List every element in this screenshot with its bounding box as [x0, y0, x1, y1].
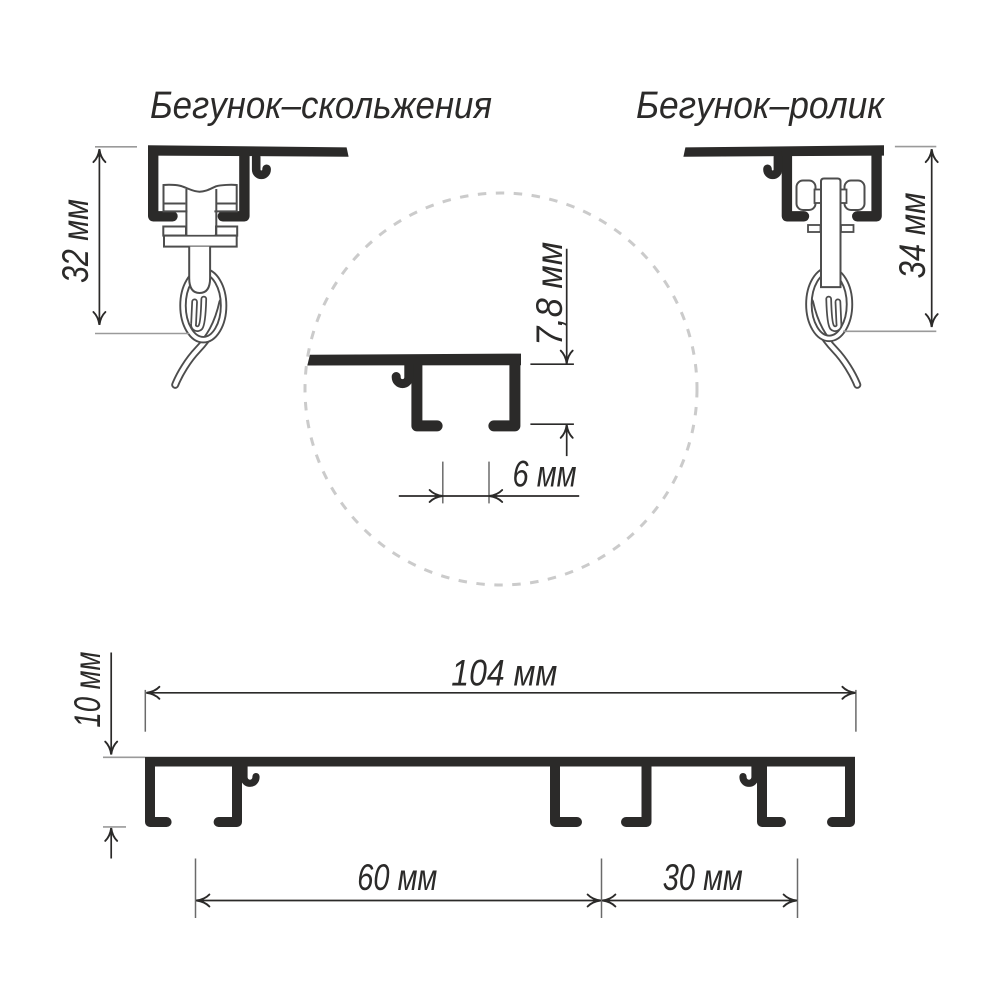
svg-text:10 мм: 10 мм	[67, 652, 108, 728]
svg-text:30 мм: 30 мм	[663, 857, 743, 898]
svg-text:7,8 мм: 7,8 мм	[529, 242, 570, 346]
svg-text:60 мм: 60 мм	[357, 857, 437, 898]
svg-text:104 мм: 104 мм	[451, 653, 557, 694]
svg-text:Бегунок–ролик: Бегунок–ролик	[636, 85, 886, 127]
svg-text:Бегунок–скольжения: Бегунок–скольжения	[150, 85, 492, 127]
svg-text:34 мм: 34 мм	[892, 193, 933, 279]
svg-text:32 мм: 32 мм	[55, 199, 96, 283]
svg-text:6 мм: 6 мм	[513, 454, 577, 495]
